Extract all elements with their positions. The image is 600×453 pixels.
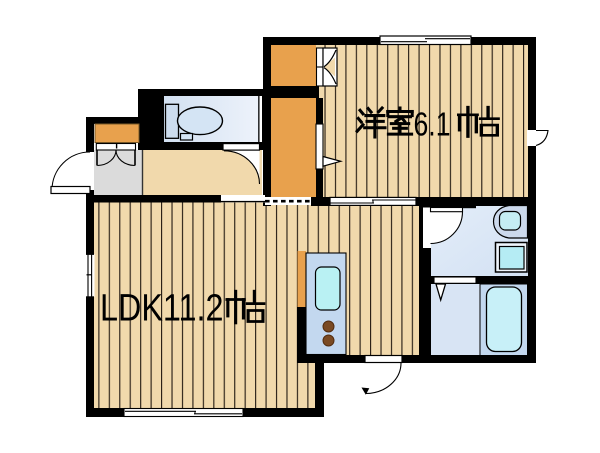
svg-text:LDK11.2: LDK11.2 [100,288,224,330]
svg-text:6.1: 6.1 [414,106,451,143]
